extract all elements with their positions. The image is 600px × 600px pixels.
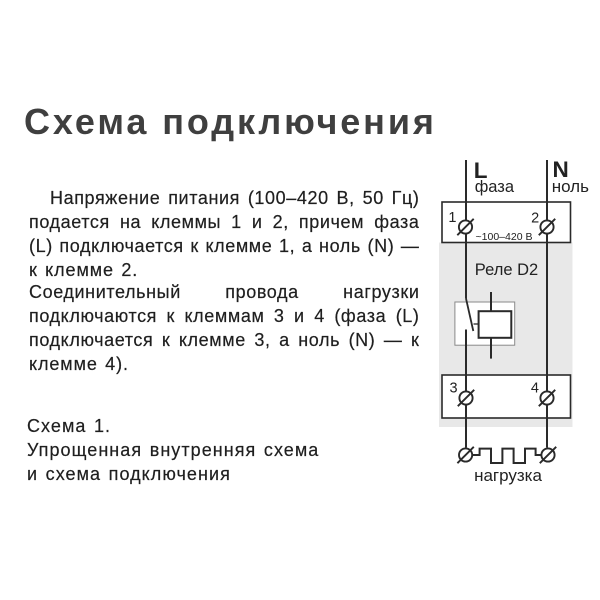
svg-text:1: 1 [448,210,456,226]
svg-text:ноль: ноль [552,177,589,196]
svg-text:нагрузка: нагрузка [474,466,542,485]
svg-text:2: 2 [531,211,539,227]
svg-text:~100–420 В: ~100–420 В [476,231,533,243]
svg-text:4: 4 [531,381,539,397]
svg-text:Реле D2: Реле D2 [475,261,538,279]
svg-text:фаза: фаза [475,178,515,196]
svg-text:3: 3 [450,381,458,397]
